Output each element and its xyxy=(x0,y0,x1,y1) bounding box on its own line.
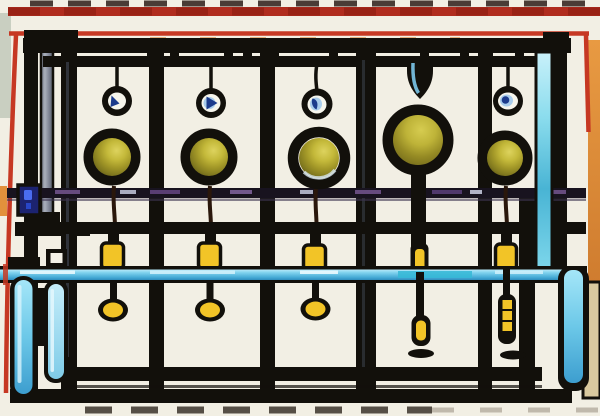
beam-stub xyxy=(460,50,469,58)
scene-root xyxy=(0,0,600,416)
post-highlight xyxy=(362,60,365,375)
capsule-segment xyxy=(503,300,513,309)
right-orange-band xyxy=(588,40,600,284)
bottle-1 xyxy=(102,243,124,269)
bob-3 xyxy=(306,302,326,317)
beam-stub xyxy=(329,50,338,58)
gauge-glyph-dot xyxy=(26,203,31,209)
rod-fleck xyxy=(120,190,136,194)
beam-cap-left xyxy=(24,30,78,40)
shadow-dash-4 xyxy=(408,349,434,358)
pipe-streak xyxy=(150,271,235,275)
pipe-elbow-core xyxy=(564,270,583,383)
rod-fleck xyxy=(432,190,462,194)
bottom-beam xyxy=(10,389,572,403)
bob-1 xyxy=(103,303,123,318)
disc-stem-4 xyxy=(411,168,426,256)
right-cyan-tube xyxy=(536,52,552,273)
rod-fleck xyxy=(355,190,381,194)
capsule-segment xyxy=(503,311,513,320)
pipe-streak xyxy=(398,271,472,278)
post-3 xyxy=(149,40,164,397)
post-6 xyxy=(478,40,492,397)
capsule-segment xyxy=(503,322,513,331)
rod-fleck xyxy=(470,190,482,194)
shadow-dash-5 xyxy=(500,351,526,360)
disc-2 xyxy=(190,138,228,176)
rod-underline xyxy=(0,199,586,202)
inner-bottom-rail xyxy=(65,367,542,381)
beam-stub xyxy=(515,50,524,58)
abstract-apparatus-artwork xyxy=(0,0,600,416)
frame-stub xyxy=(33,288,46,346)
beam-stub xyxy=(224,50,233,58)
post-4 xyxy=(260,40,275,397)
eye-pupil-5 xyxy=(502,96,510,104)
frame-red-line-right xyxy=(586,35,589,132)
bob-stem-5 xyxy=(503,268,510,296)
pipe-streak xyxy=(300,271,338,275)
hanger-string-3 xyxy=(316,64,317,91)
beam-stub xyxy=(243,50,252,58)
rod-fleck xyxy=(150,190,180,194)
disc-5 xyxy=(487,140,523,176)
beam-stub xyxy=(420,50,429,58)
left-orange-tick xyxy=(0,186,7,216)
bracket-slot xyxy=(51,253,63,263)
tube-highlight xyxy=(51,289,55,372)
tube-highlight xyxy=(18,285,22,383)
rod-fleck xyxy=(300,190,313,194)
rail-echo-line xyxy=(65,385,542,388)
mid-rail xyxy=(15,222,586,234)
artwork-canvas xyxy=(0,0,600,416)
water-tube-left-core xyxy=(15,280,33,394)
middle-rod xyxy=(0,188,586,198)
disc-1 xyxy=(93,138,131,176)
capsule-slot-4 xyxy=(416,321,426,341)
pipe-junction xyxy=(8,257,40,269)
red-line-over-pipe xyxy=(3,264,8,285)
pipe-streak xyxy=(495,271,543,275)
bottle-2 xyxy=(199,243,221,269)
post-5 xyxy=(356,40,376,397)
pipe-streak xyxy=(20,271,75,275)
gauge-glyph xyxy=(24,190,32,200)
bob-2 xyxy=(200,303,220,318)
beam-stub xyxy=(170,50,179,58)
bob-stem-4 xyxy=(416,272,424,317)
rod-fleck xyxy=(230,190,252,194)
rod-fleck xyxy=(55,190,80,194)
water-tube-mid-core xyxy=(48,284,64,379)
sage-strip xyxy=(0,13,11,118)
disc-4 xyxy=(393,115,443,165)
